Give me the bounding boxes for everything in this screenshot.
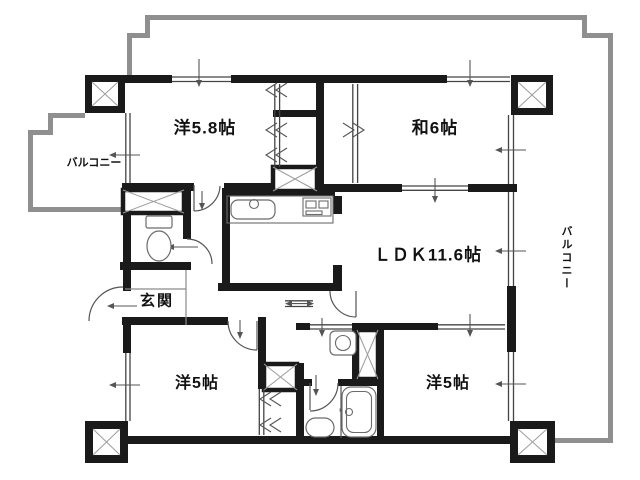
room-label-western-58: 洋5.8帖	[174, 114, 237, 139]
room-label-genkan: 玄関	[140, 290, 174, 311]
pillar-bottom-left	[85, 421, 128, 463]
balcony-label-left: バルコニー	[67, 154, 122, 170]
closet-x-bottom	[264, 364, 297, 390]
balcony-label-right: バルコニー	[558, 226, 574, 291]
pillar-top-left	[85, 75, 125, 113]
room-label-ldk: ＬＤＫ11.6帖	[374, 241, 482, 266]
room-label-western-5-right: 洋5帖	[426, 369, 470, 393]
toilet2-fixture	[306, 418, 334, 437]
toilet-fixture	[146, 216, 172, 261]
room-label-japanese-6: 和6帖	[412, 114, 458, 139]
closet-x-top	[273, 167, 317, 191]
washbasin-fixture	[330, 331, 356, 355]
shoe-closet	[123, 190, 184, 213]
closet-strip	[357, 330, 378, 379]
bathtub-fixture	[342, 387, 376, 437]
floorplan: 洋5.8帖 和6帖 ＬＤＫ11.6帖 洋5帖 洋5帖 玄関 バルコニー バルコニ…	[0, 0, 640, 480]
pillar-top-right	[511, 75, 553, 115]
floorplan-drawing	[0, 0, 640, 480]
pillar-bottom-right	[510, 421, 555, 463]
room-label-western-5-left: 洋5帖	[175, 369, 219, 393]
kitchen-counter	[227, 196, 333, 223]
